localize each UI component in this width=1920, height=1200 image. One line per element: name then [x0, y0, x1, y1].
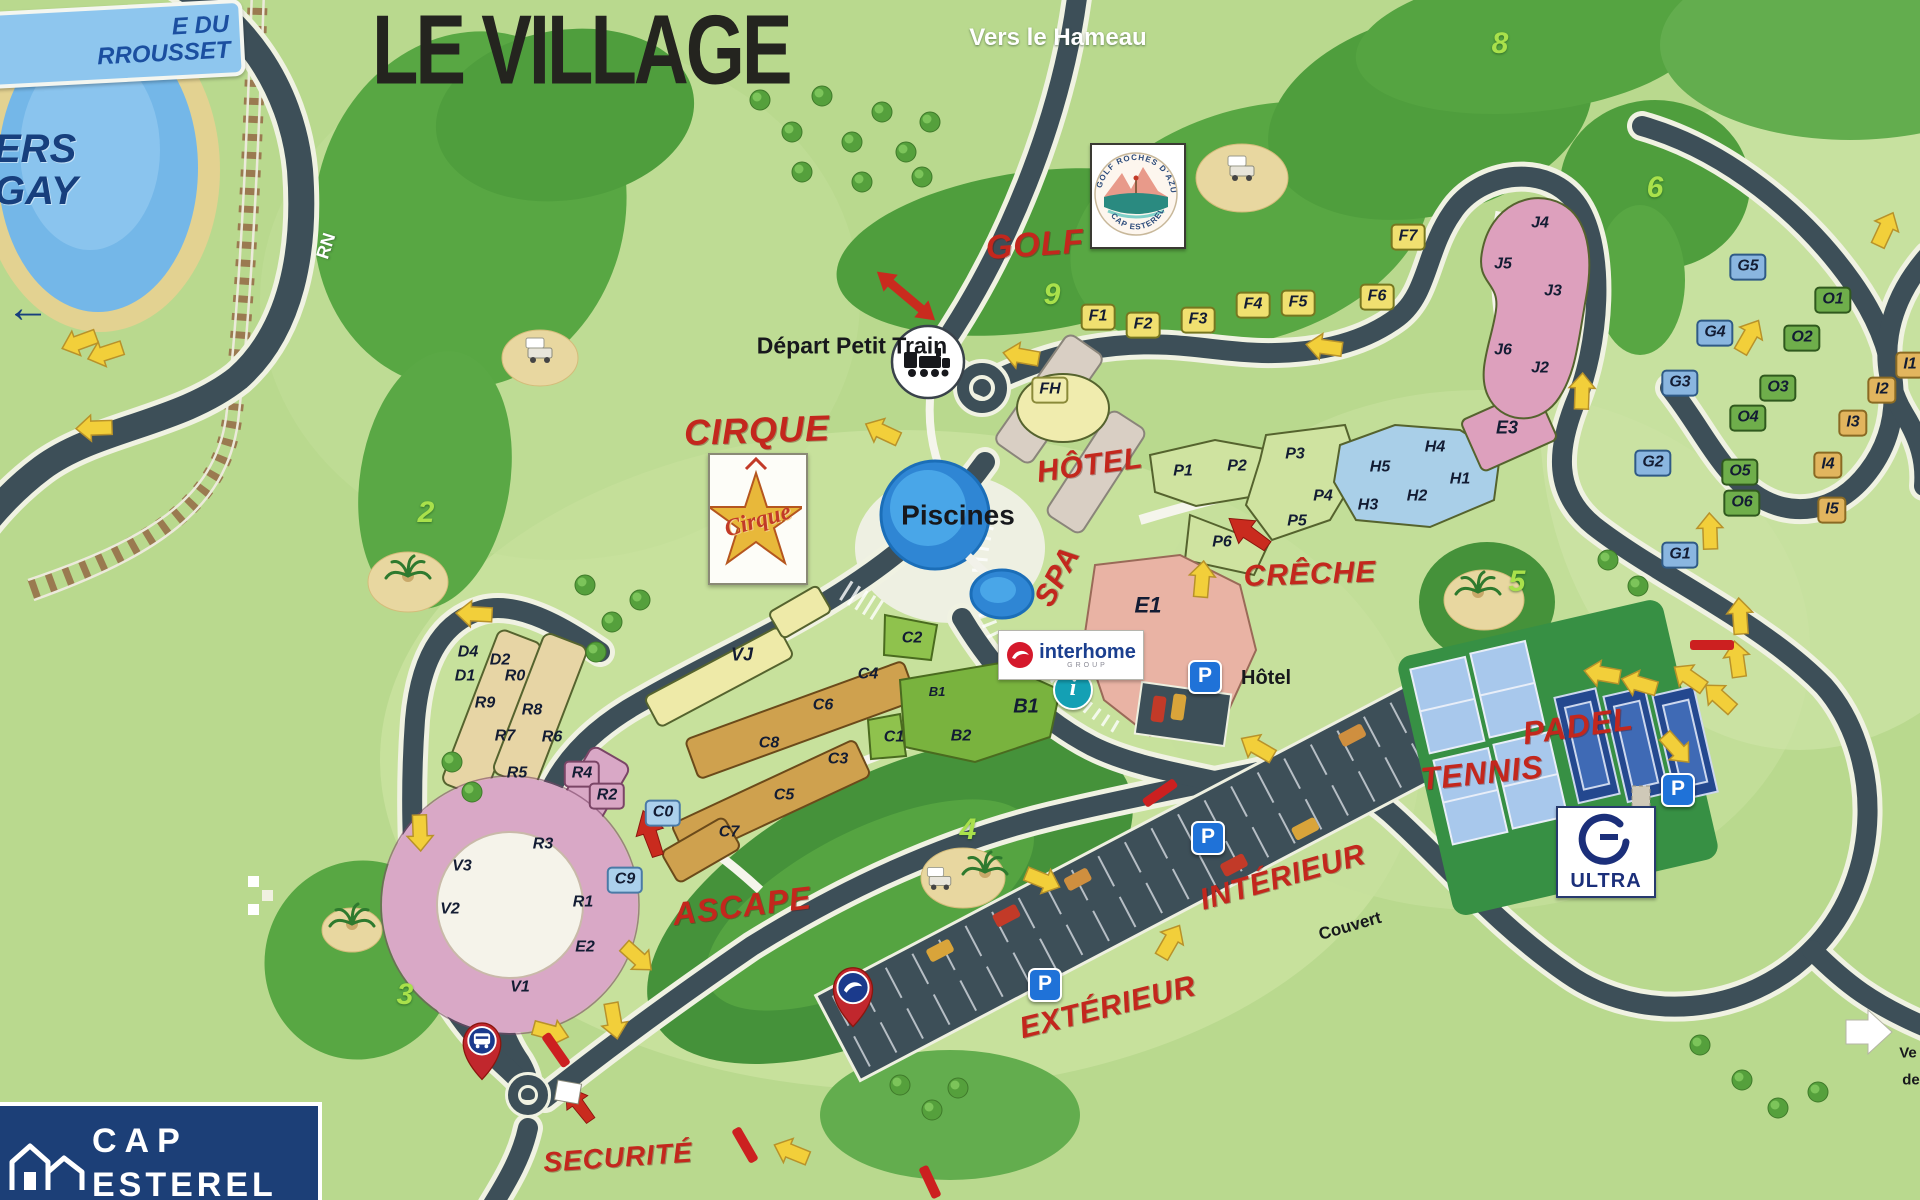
building-label: O4: [1729, 405, 1766, 432]
building-label: P3: [1285, 447, 1305, 464]
building-label: FH: [1031, 377, 1068, 404]
resort-map: LE VILLAGE E DU RROUSSET ERS GAY ← GOLFC…: [0, 0, 1920, 1200]
building-label: B2: [951, 729, 971, 746]
golf-club-logo: GOLF ROCHES D'AZUR CAP ESTEREL: [1090, 143, 1186, 249]
poi-label: CIRQUE: [683, 410, 830, 452]
vers-agay-sign: ERS GAY: [0, 128, 78, 212]
building-label: C4: [858, 667, 878, 684]
building-label: C3: [828, 752, 848, 769]
building-label: J4: [1531, 216, 1549, 233]
building-label: H2: [1407, 489, 1427, 506]
plage-sign: E DU RROUSSET: [0, 0, 246, 90]
poi-label: Ve: [1899, 1045, 1917, 1060]
poi-label: Vers le Hameau: [969, 26, 1146, 50]
building-label: C9: [607, 867, 643, 894]
building-label: I5: [1817, 497, 1846, 524]
building-label: V3: [452, 859, 472, 876]
building-label: B1: [929, 685, 946, 699]
building-label: C0: [645, 800, 681, 827]
ultra-ring-icon: [1560, 808, 1652, 866]
ultra-logo: ULTRA: [1556, 806, 1656, 898]
building-label: G4: [1696, 320, 1733, 347]
poi-label: CRÊCHE: [1243, 557, 1377, 592]
building-label: I3: [1838, 410, 1867, 437]
building-label: V2: [440, 902, 460, 919]
interhome-logo-subtext: GROUP: [1039, 662, 1136, 669]
building-label: J2: [1531, 361, 1549, 378]
building-label: G1: [1661, 542, 1698, 569]
building-label: R7: [495, 729, 515, 746]
golf-hole-number: 9: [1044, 278, 1061, 312]
interhome-logo: interhome GROUP: [998, 630, 1144, 680]
building-label: F1: [1081, 304, 1116, 331]
building-label: O1: [1814, 287, 1851, 314]
building-label: D1: [455, 669, 475, 686]
parking-icon: P: [1028, 968, 1062, 1002]
building-label: R3: [533, 837, 553, 854]
building-label: D4: [458, 645, 478, 662]
building-label: O3: [1759, 375, 1796, 402]
building-label: C1: [884, 730, 904, 747]
building-label: F6: [1360, 284, 1395, 311]
building-label: C2: [902, 631, 922, 648]
building-label: J3: [1544, 284, 1562, 301]
building-label: J6: [1494, 343, 1512, 360]
building-label: F5: [1281, 290, 1316, 317]
building-label: O6: [1723, 490, 1760, 517]
building-label: B1: [1013, 697, 1039, 718]
cirque-logo: Cirque: [708, 453, 808, 585]
golf-hole-number: 5: [1509, 565, 1526, 599]
building-label: R1: [573, 895, 593, 912]
building-label: G2: [1634, 450, 1671, 477]
building-label: E2: [575, 940, 595, 957]
building-label: P4: [1313, 489, 1333, 506]
golf-hole-number: 4: [960, 813, 977, 847]
building-label: G5: [1729, 254, 1766, 281]
left-arrow-icon: ←: [6, 286, 50, 330]
building-label: V1: [510, 980, 530, 997]
building-label: J5: [1494, 257, 1512, 274]
interhome-logo-text: interhome: [1039, 642, 1136, 662]
golf-hole-number: 8: [1492, 27, 1509, 61]
building-label: P6: [1212, 535, 1232, 552]
parking-icon: P: [1661, 773, 1695, 807]
cap-esterel-line2: ESTEREL: [92, 1168, 277, 1200]
building-label: F7: [1391, 224, 1426, 251]
building-label: C8: [759, 736, 779, 753]
poi-label: de: [1902, 1072, 1920, 1087]
building-label: R6: [542, 730, 562, 747]
ultra-logo-text: ULTRA: [1558, 871, 1654, 891]
building-label: I4: [1813, 452, 1842, 479]
building-label: R8: [522, 703, 542, 720]
building-label: H4: [1425, 440, 1445, 457]
building-label: E3: [1496, 419, 1518, 438]
poi-label: Départ Petit Train: [757, 334, 947, 357]
building-label: P1: [1173, 464, 1193, 481]
building-label: R0: [505, 669, 525, 686]
building-label: F2: [1126, 312, 1161, 339]
building-label: R9: [475, 696, 495, 713]
building-label: C5: [774, 788, 794, 805]
cap-esterel-house-icon: [0, 1124, 92, 1200]
golf-hole-number: 6: [1647, 171, 1664, 205]
cap-esterel-line1: CAP: [92, 1124, 277, 1158]
building-label: R5: [507, 766, 527, 783]
poi-label: Piscines: [901, 502, 1015, 531]
parking-icon: P: [1188, 660, 1222, 694]
building-label: P2: [1227, 459, 1247, 476]
building-label: E1: [1135, 593, 1162, 616]
interhome-bird-icon: [1006, 641, 1034, 669]
building-label: H5: [1370, 460, 1390, 477]
cap-esterel-logo: CAP ESTEREL: [0, 1102, 322, 1200]
page-title: LE VILLAGE: [372, 0, 790, 107]
building-label: P5: [1287, 514, 1307, 531]
building-label: F4: [1236, 292, 1271, 319]
building-label: I2: [1867, 377, 1896, 404]
building-label: R2: [589, 783, 625, 810]
building-label: C7: [719, 825, 739, 842]
parking-icon: P: [1191, 821, 1225, 855]
building-label: O5: [1721, 459, 1758, 486]
golf-hole-number: 2: [418, 496, 435, 530]
building-label: H1: [1450, 472, 1470, 489]
building-label: I1: [1895, 352, 1920, 379]
building-label: C6: [813, 698, 833, 715]
building-label: F3: [1181, 307, 1216, 334]
building-label: O2: [1783, 325, 1820, 352]
map-artwork: [0, 0, 1920, 1200]
poi-label: Hôtel: [1241, 668, 1291, 688]
building-label: VJ: [731, 646, 753, 665]
poi-label: GOLF: [985, 224, 1086, 265]
golf-hole-number: 3: [397, 978, 414, 1012]
building-label: G3: [1661, 370, 1698, 397]
building-label: H3: [1358, 498, 1378, 515]
